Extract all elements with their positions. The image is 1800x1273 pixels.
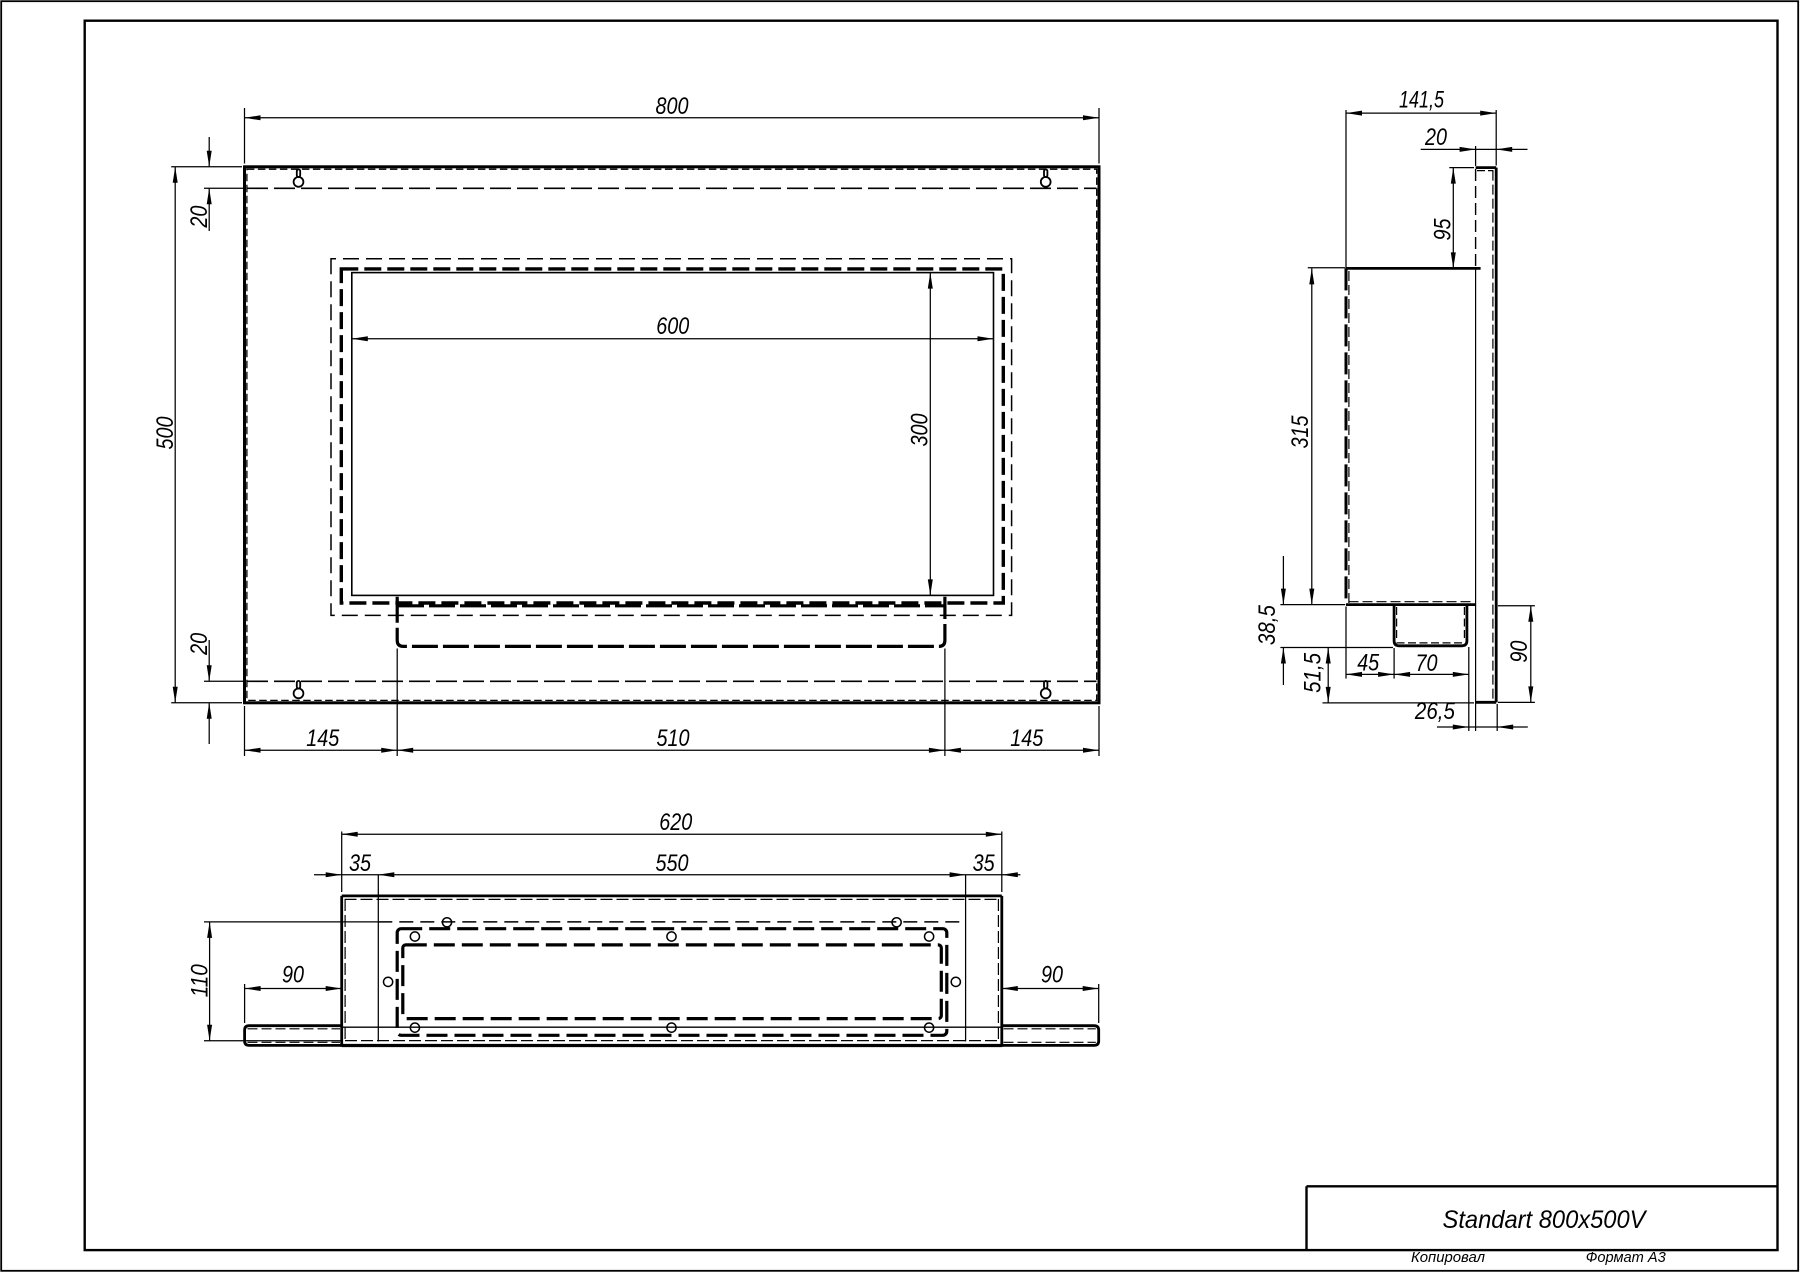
svg-text:300: 300: [907, 413, 934, 447]
svg-text:800: 800: [656, 93, 690, 120]
svg-text:Standart 800x500V: Standart 800x500V: [1443, 1206, 1648, 1234]
svg-text:Формат А3: Формат А3: [1586, 1249, 1667, 1266]
svg-text:510: 510: [657, 725, 691, 752]
svg-text:51,5: 51,5: [1300, 652, 1327, 693]
svg-text:500: 500: [152, 416, 179, 450]
svg-text:38,5: 38,5: [1254, 605, 1281, 646]
svg-text:145: 145: [1010, 725, 1044, 752]
svg-text:95: 95: [1429, 218, 1456, 241]
svg-text:315: 315: [1287, 415, 1314, 449]
svg-text:20: 20: [186, 205, 213, 228]
svg-text:45: 45: [1357, 650, 1380, 677]
svg-text:35: 35: [973, 850, 996, 877]
svg-text:600: 600: [656, 313, 690, 340]
svg-text:145: 145: [306, 725, 340, 752]
svg-text:Копировал: Копировал: [1411, 1249, 1486, 1266]
svg-text:90: 90: [1041, 961, 1064, 988]
svg-text:141,5: 141,5: [1399, 87, 1444, 114]
svg-text:20: 20: [186, 632, 213, 655]
svg-text:20: 20: [1424, 124, 1447, 151]
svg-text:90: 90: [1506, 640, 1533, 663]
svg-text:90: 90: [282, 961, 305, 988]
svg-text:35: 35: [349, 850, 372, 877]
svg-text:110: 110: [186, 964, 213, 998]
svg-text:26,5: 26,5: [1414, 698, 1455, 725]
svg-text:550: 550: [656, 850, 690, 877]
svg-text:620: 620: [659, 809, 693, 836]
svg-text:70: 70: [1416, 650, 1439, 677]
